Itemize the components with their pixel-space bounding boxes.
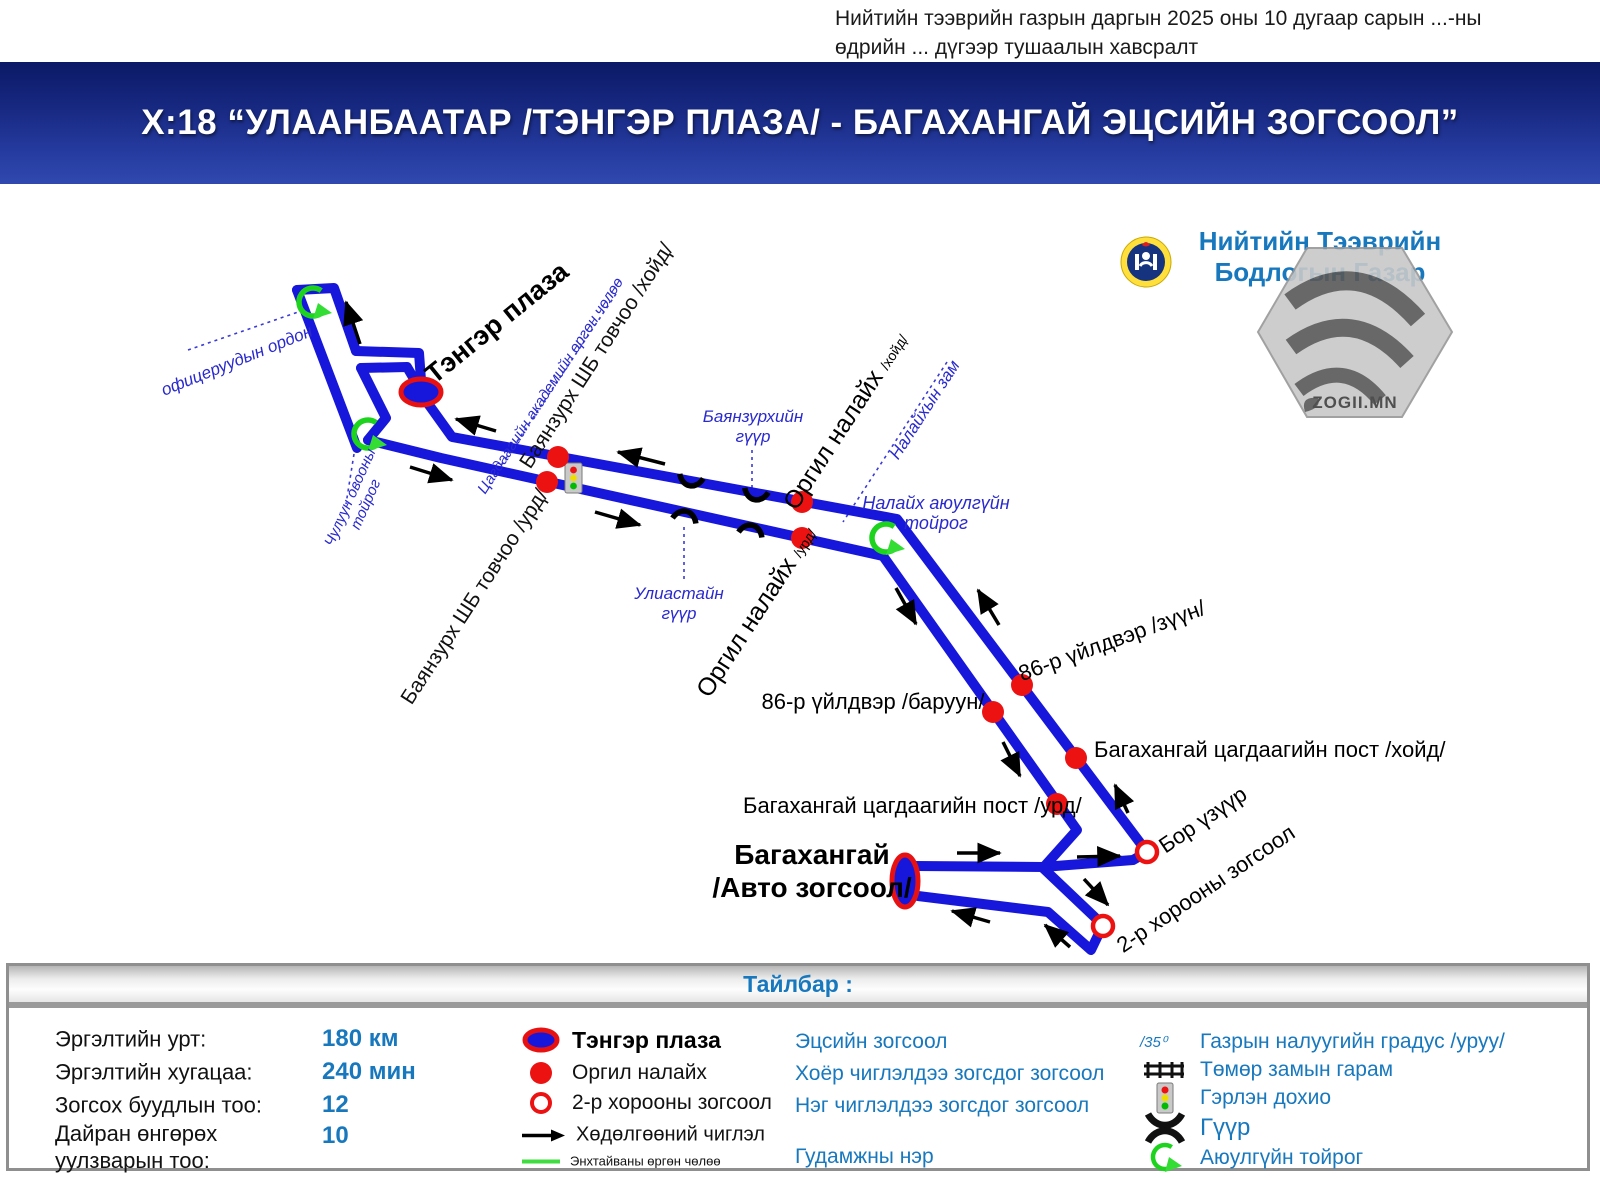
legend-railroad-row: Төмөр замын гарам (1140, 1058, 1393, 1082)
label-nalaikh-toirog: Налайх аюулгүйн тойрог (862, 493, 1009, 533)
route-zigzag (361, 368, 386, 440)
label-post-khoid: Багахангай цагдаагийн пост /хойд/ (1094, 737, 1445, 763)
org-emblem (1121, 237, 1171, 287)
stat-route-length: Эргэлтийн урт: (55, 1026, 206, 1053)
stat-stop-count: Зогсох буудлын тоо: (55, 1092, 262, 1119)
label-uliastai-guur: Улиастайн гүүр (634, 584, 724, 624)
one-direction-stop-icon (520, 1091, 562, 1115)
legend-title: Тайлбар : (743, 971, 853, 998)
legend-header: Тайлбар : (9, 966, 1587, 1008)
svg-text:ZOGII.MN: ZOGII.MN (1312, 393, 1397, 412)
stat-duration-value: 240 мин (322, 1058, 416, 1086)
legend-direction-row: Хөдөлгөөний чиглэл (520, 1124, 765, 1147)
meaning-street: Гудамжны нэр (795, 1145, 934, 1169)
label-f86-baruun: 86-р үйлдвэр /баруун/ (761, 689, 984, 715)
legend-slope-row: /35⁰ Газрын налуугийн градус /уруу/ (1140, 1030, 1505, 1054)
label-post-urd: Багахангай цагдаагийн пост /урд/ (743, 793, 1082, 819)
green-road-icon (522, 1159, 560, 1163)
meaning-two-dir: Хоёр чиглэлдээ зогсдог зогсоол (795, 1062, 1104, 1086)
stat-route-length-value: 180 км (322, 1025, 398, 1053)
two-direction-stop-icon (520, 1061, 562, 1085)
label-bagakhangai: Багахангай /Авто зогсоол/ (712, 838, 911, 904)
legend-terminal-row: Тэнгэр плаза (520, 1026, 721, 1054)
legend-roundabout-row: Аюулгүйн тойрог (1140, 1140, 1363, 1176)
railroad-crossing-icon (1140, 1060, 1190, 1080)
stat-junction-count-value: 10 (322, 1122, 349, 1150)
route-terminal-loop (916, 852, 1147, 867)
stat-duration: Эргэлтийн хугацаа: (55, 1059, 253, 1086)
legend-one-dir-row: 2-р хорооны зогсоол (520, 1091, 772, 1115)
zogii-watermark: ZOGII.MN (1258, 248, 1452, 417)
traffic-light-icon (565, 463, 582, 493)
direction-arrow-icon (520, 1128, 566, 1142)
stat-junction-count: Дайран өнгөрөхуулзварын тоо: (55, 1120, 217, 1174)
slope-icon: /35⁰ (1140, 1033, 1190, 1051)
legend-two-dir-row: Оргил налайх (520, 1061, 707, 1085)
roundabout-legend-icon (1140, 1140, 1190, 1176)
stat-stop-count-value: 12 (322, 1091, 349, 1119)
meaning-one-dir: Нэг чиглэлдээ зогсдог зогсоол (795, 1094, 1089, 1118)
label-bz-guur: Баянзурхийн гүүр (703, 407, 803, 447)
meaning-terminal: Эцсийн зогсоол (795, 1030, 947, 1054)
route-poster: Нийтийн тээврийн газрын даргын 2025 оны … (0, 0, 1600, 1179)
legend-green-road-row: Энхтайваны өргөн чөлөө (522, 1154, 721, 1169)
terminal-stop-icon (520, 1026, 562, 1054)
